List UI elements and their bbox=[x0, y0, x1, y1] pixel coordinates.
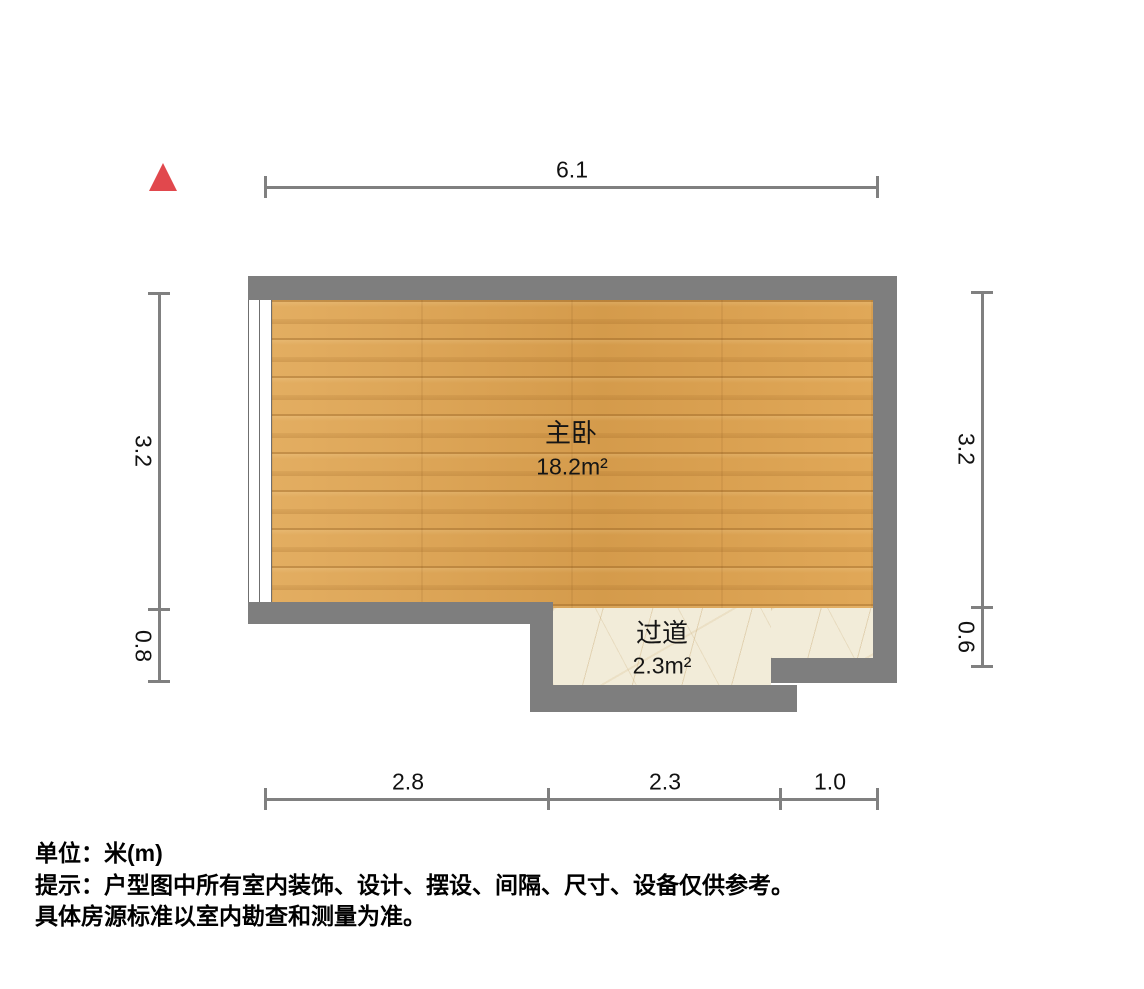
dimension-tick bbox=[148, 608, 170, 611]
wall-hallway-bottom bbox=[530, 685, 797, 712]
dimension-tick bbox=[876, 788, 879, 810]
room-hallway-floor-right bbox=[771, 608, 873, 658]
room-bedroom-area: 18.2m² bbox=[536, 456, 608, 479]
unit-note: 单位：米(m) bbox=[35, 838, 1085, 870]
window-line bbox=[248, 300, 249, 602]
dimension-value: 2.8 bbox=[392, 771, 424, 794]
hint-note-line1: 提示：户型图中所有室内装饰、设计、摆设、间隔、尺寸、设备仅供参考。 bbox=[35, 870, 1085, 902]
window-line bbox=[271, 300, 272, 602]
room-hallway-label: 过道 bbox=[636, 620, 688, 646]
dimension-tick bbox=[264, 788, 267, 810]
dimension-tick bbox=[148, 292, 170, 295]
dimension-line bbox=[981, 293, 984, 667]
footer-notes: 单位：米(m) 提示：户型图中所有室内装饰、设计、摆设、间隔、尺寸、设备仅供参考… bbox=[35, 838, 1085, 933]
room-hallway-area: 2.3m² bbox=[633, 655, 692, 678]
wall-hallway-step bbox=[771, 658, 897, 683]
dimension-value: 0.8 bbox=[132, 630, 155, 662]
dimension-tick bbox=[971, 665, 993, 668]
dimension-value: 3.2 bbox=[132, 435, 155, 467]
wall-top bbox=[248, 276, 897, 300]
window-line bbox=[259, 300, 260, 602]
dimension-value: 6.1 bbox=[556, 159, 588, 182]
dimension-tick bbox=[547, 788, 550, 810]
dimension-tick bbox=[148, 680, 170, 683]
dimension-tick bbox=[779, 788, 782, 810]
wall-bedroom-bottom bbox=[248, 602, 553, 624]
dimension-value: 1.0 bbox=[814, 771, 846, 794]
dimension-value: 0.6 bbox=[955, 621, 978, 653]
dimension-tick bbox=[876, 176, 879, 198]
dimension-line bbox=[158, 294, 161, 682]
dimension-value: 3.2 bbox=[955, 433, 978, 465]
dimension-value: 2.3 bbox=[649, 771, 681, 794]
window bbox=[248, 300, 272, 602]
dimension-tick bbox=[264, 176, 267, 198]
floor-plan-canvas: 主卧 18.2m² 过道 2.3m² 6.1 3.2 0.8 3.2 0.6 2… bbox=[0, 0, 1144, 989]
north-arrow-icon bbox=[149, 163, 177, 191]
room-bedroom-label: 主卧 bbox=[545, 420, 597, 446]
dimension-tick bbox=[971, 606, 993, 609]
dimension-line bbox=[266, 186, 878, 189]
dimension-tick bbox=[971, 291, 993, 294]
dimension-line bbox=[266, 798, 878, 801]
wall-right bbox=[873, 300, 897, 683]
hint-note-line2: 具体房源标准以室内勘查和测量为准。 bbox=[35, 901, 1085, 933]
